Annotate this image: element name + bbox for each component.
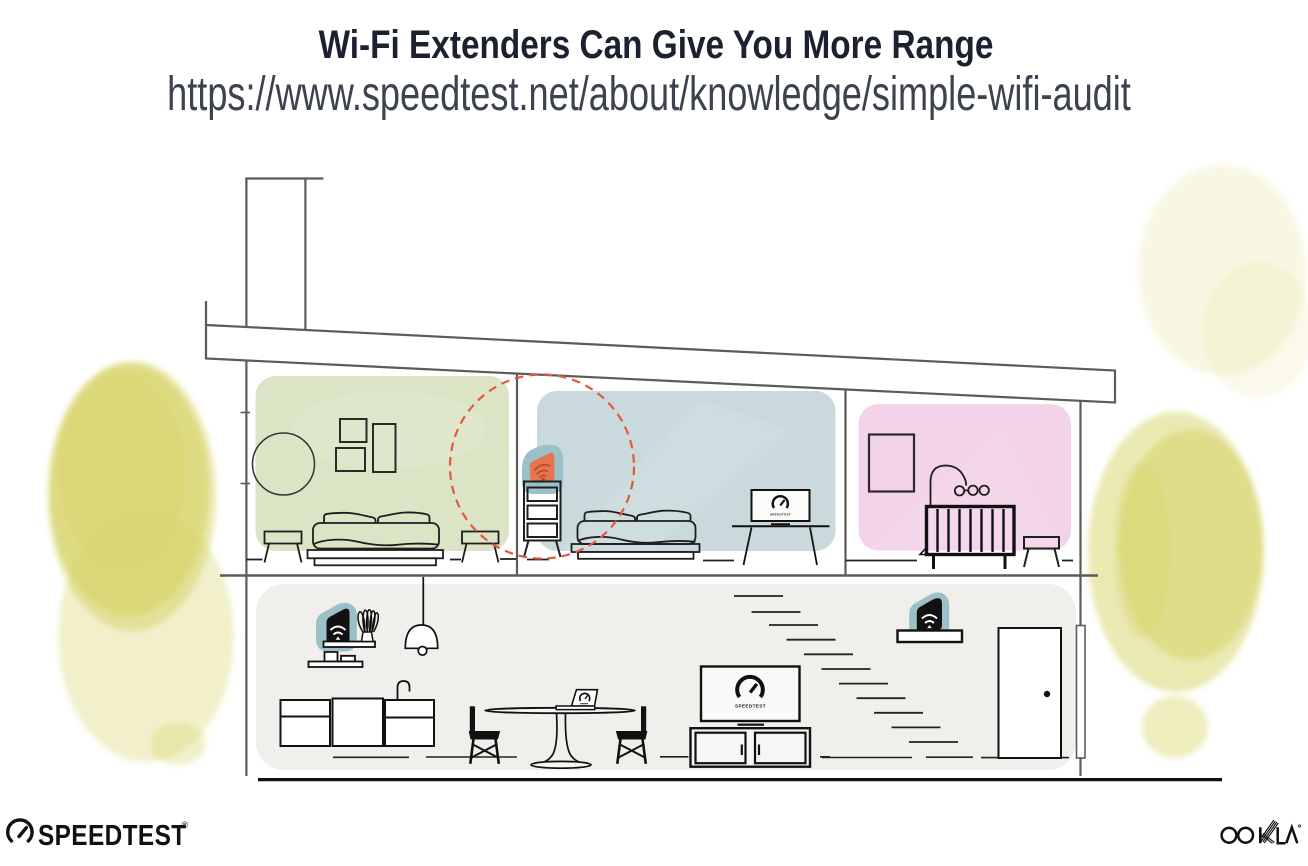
svg-text:®: ® <box>182 820 189 830</box>
svg-text:SPEEDTEST: SPEEDTEST <box>770 513 791 517</box>
svg-text:SPEEDTEST: SPEEDTEST <box>735 704 766 709</box>
svg-text:https://www.speedtest.net/abou: https://www.speedtest.net/about/knowledg… <box>167 68 1131 121</box>
svg-text:SPEEDTEST: SPEEDTEST <box>38 819 187 851</box>
svg-text:Wi-Fi Extenders Can Give You M: Wi-Fi Extenders Can Give You More Range <box>319 22 994 67</box>
